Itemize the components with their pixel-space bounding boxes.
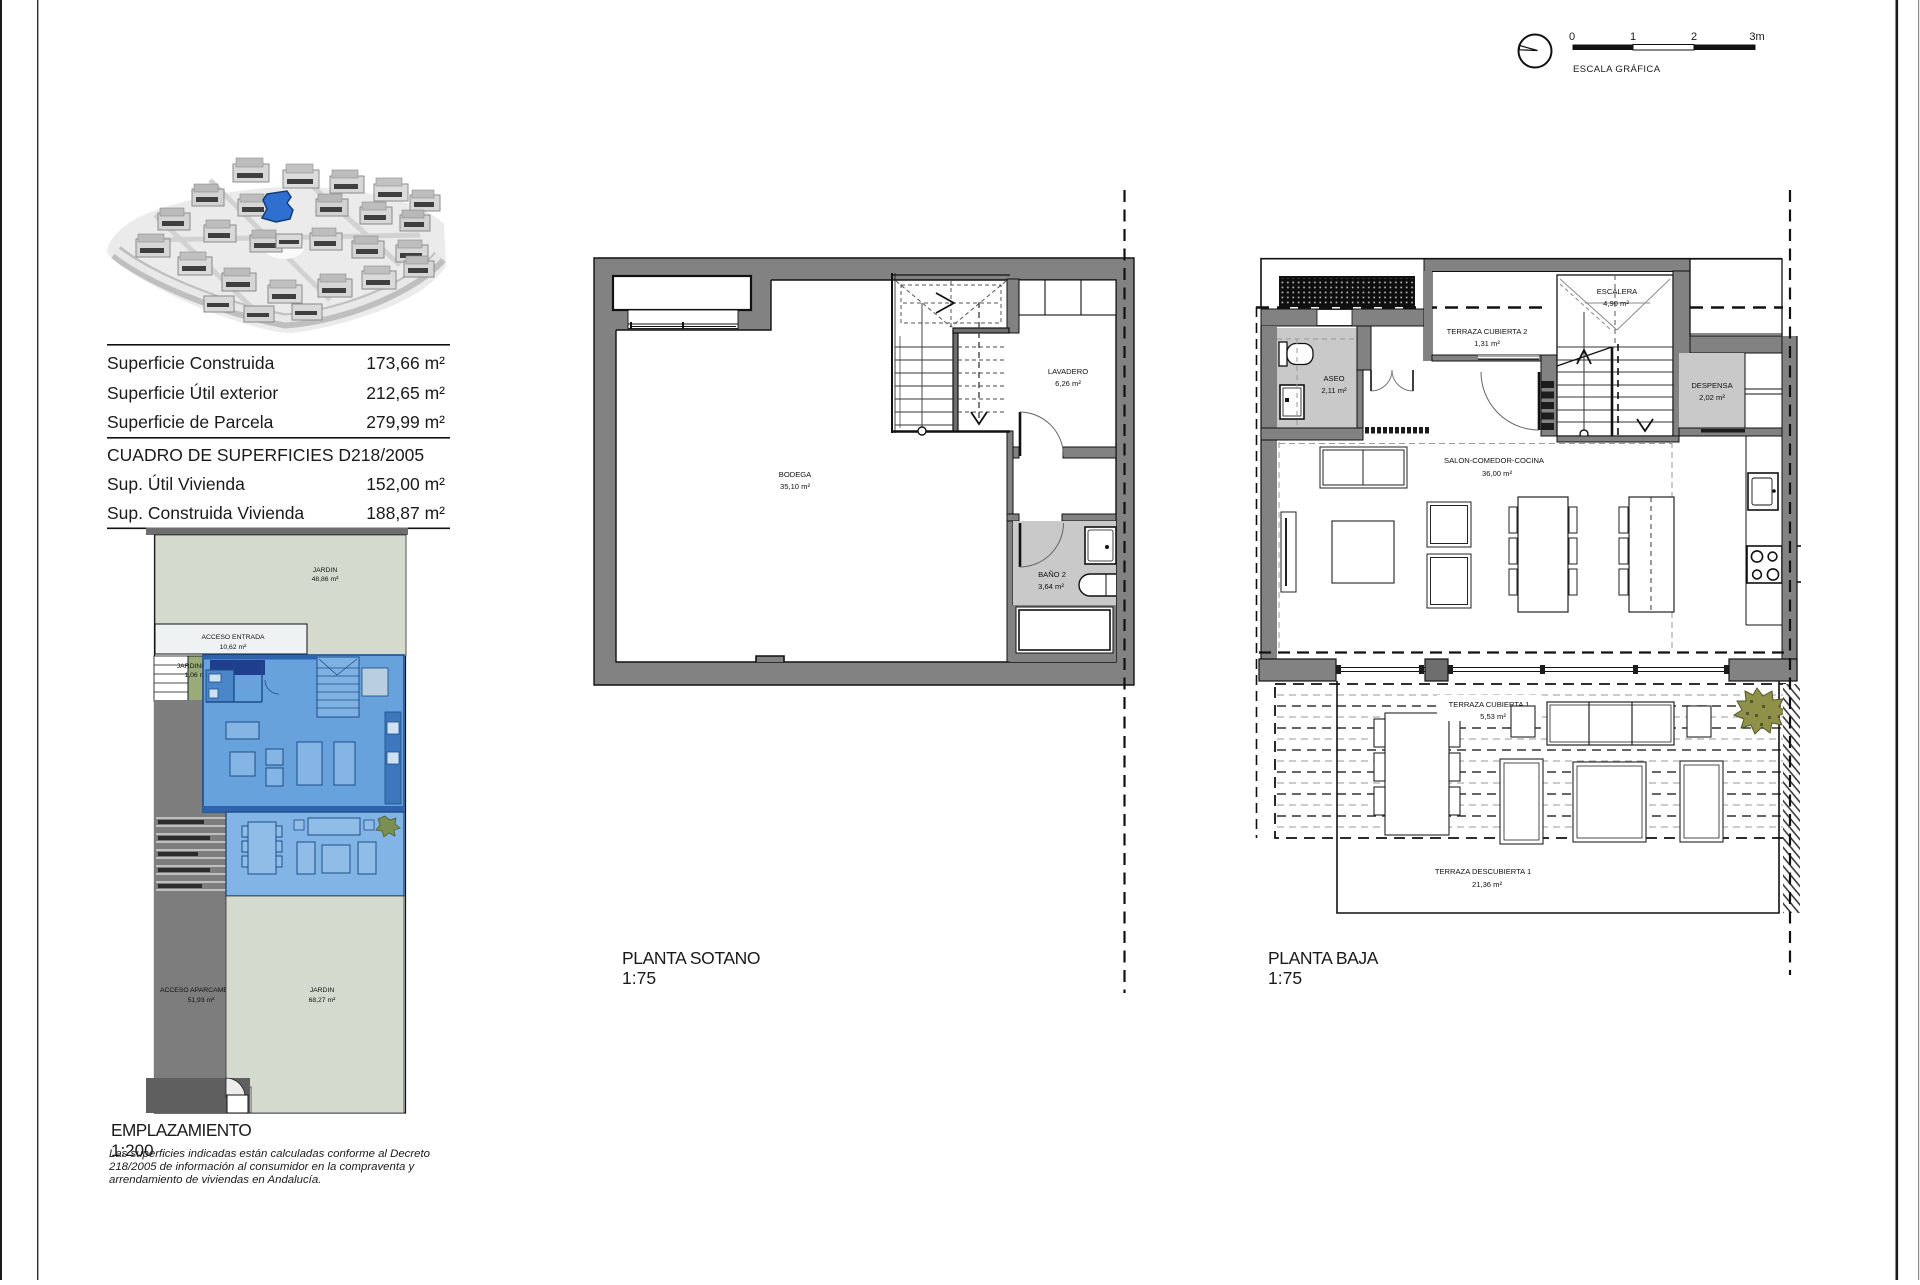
svg-text:51,93 m²: 51,93 m² bbox=[188, 997, 216, 1004]
svg-text:5,53 m²: 5,53 m² bbox=[1480, 712, 1506, 721]
svg-text:68,27 m²: 68,27 m² bbox=[309, 997, 337, 1004]
svg-text:PLANTA BAJA: PLANTA BAJA bbox=[1268, 948, 1379, 968]
svg-text:ESCALA GRÁFICA: ESCALA GRÁFICA bbox=[1573, 64, 1661, 75]
svg-text:BAÑO 2: BAÑO 2 bbox=[1038, 570, 1066, 579]
svg-text:0: 0 bbox=[1569, 31, 1575, 43]
svg-text:DESPENSA: DESPENSA bbox=[1691, 381, 1733, 390]
svg-text:Sup. Construida Vivienda: Sup. Construida Vivienda bbox=[107, 503, 304, 523]
svg-text:1:75: 1:75 bbox=[622, 968, 656, 988]
svg-text:35,10 m²: 35,10 m² bbox=[780, 482, 810, 491]
svg-text:ASEO: ASEO bbox=[1323, 374, 1344, 383]
svg-text:Las superficies indicadas está: Las superficies indicadas están calculad… bbox=[109, 1148, 430, 1160]
svg-text:212,65 m²: 212,65 m² bbox=[366, 383, 445, 403]
svg-text:3m: 3m bbox=[1749, 31, 1764, 43]
svg-text:JARDIN: JARDIN bbox=[313, 567, 338, 574]
svg-text:10,62 m²: 10,62 m² bbox=[220, 644, 248, 651]
svg-text:4,90 m²: 4,90 m² bbox=[1603, 299, 1629, 308]
svg-text:6,26 m²: 6,26 m² bbox=[1055, 379, 1081, 388]
svg-text:ESCALERA: ESCALERA bbox=[1597, 287, 1638, 296]
svg-text:2: 2 bbox=[1691, 31, 1697, 43]
svg-text:PLANTA SOTANO: PLANTA SOTANO bbox=[622, 948, 760, 968]
svg-text:arrendamiento de viviendas en: arrendamiento de viviendas en Andalucía. bbox=[109, 1174, 321, 1186]
svg-text:LAVADERO: LAVADERO bbox=[1048, 367, 1088, 376]
svg-text:218/2005 de información al con: 218/2005 de información al consumidor en… bbox=[108, 1161, 415, 1173]
svg-text:SALON-COMEDOR-COCINA: SALON-COMEDOR-COCINA bbox=[1444, 456, 1545, 465]
svg-text:JARDIN: JARDIN bbox=[310, 987, 335, 994]
svg-text:173,66 m²: 173,66 m² bbox=[366, 353, 445, 373]
svg-text:36,00 m²: 36,00 m² bbox=[1482, 469, 1512, 478]
svg-text:BODEGA: BODEGA bbox=[779, 470, 812, 479]
svg-text:279,99 m²: 279,99 m² bbox=[366, 412, 445, 432]
svg-text:1,31 m²: 1,31 m² bbox=[1474, 339, 1500, 348]
svg-text:1: 1 bbox=[1630, 31, 1636, 43]
svg-text:Superficie Construida: Superficie Construida bbox=[107, 353, 275, 373]
svg-text:TERRAZA DESCUBIERTA 1: TERRAZA DESCUBIERTA 1 bbox=[1435, 867, 1531, 876]
svg-text:21,36 m²: 21,36 m² bbox=[1472, 880, 1502, 889]
svg-text:Superficie de Parcela: Superficie de Parcela bbox=[107, 412, 274, 432]
svg-text:48,86 m²: 48,86 m² bbox=[312, 576, 340, 583]
svg-text:152,00 m²: 152,00 m² bbox=[366, 474, 445, 494]
svg-text:Sup. Útil Vivienda: Sup. Útil Vivienda bbox=[107, 473, 245, 494]
svg-text:2,11 m²: 2,11 m² bbox=[1321, 386, 1347, 395]
svg-text:188,87 m²: 188,87 m² bbox=[366, 503, 445, 523]
svg-text:3,64 m²: 3,64 m² bbox=[1038, 582, 1064, 591]
svg-text:2,02 m²: 2,02 m² bbox=[1699, 393, 1725, 402]
svg-text:CUADRO DE SUPERFICIES D218/200: CUADRO DE SUPERFICIES D218/2005 bbox=[107, 445, 424, 465]
svg-text:ACCESO ENTRADA: ACCESO ENTRADA bbox=[201, 634, 265, 641]
svg-text:TERRAZA CUBIERTA 2: TERRAZA CUBIERTA 2 bbox=[1447, 327, 1528, 336]
svg-text:1:75: 1:75 bbox=[1268, 968, 1302, 988]
svg-text:EMPLAZAMIENTO: EMPLAZAMIENTO bbox=[111, 1120, 251, 1140]
svg-text:Superficie Útil exterior: Superficie Útil exterior bbox=[107, 382, 278, 403]
